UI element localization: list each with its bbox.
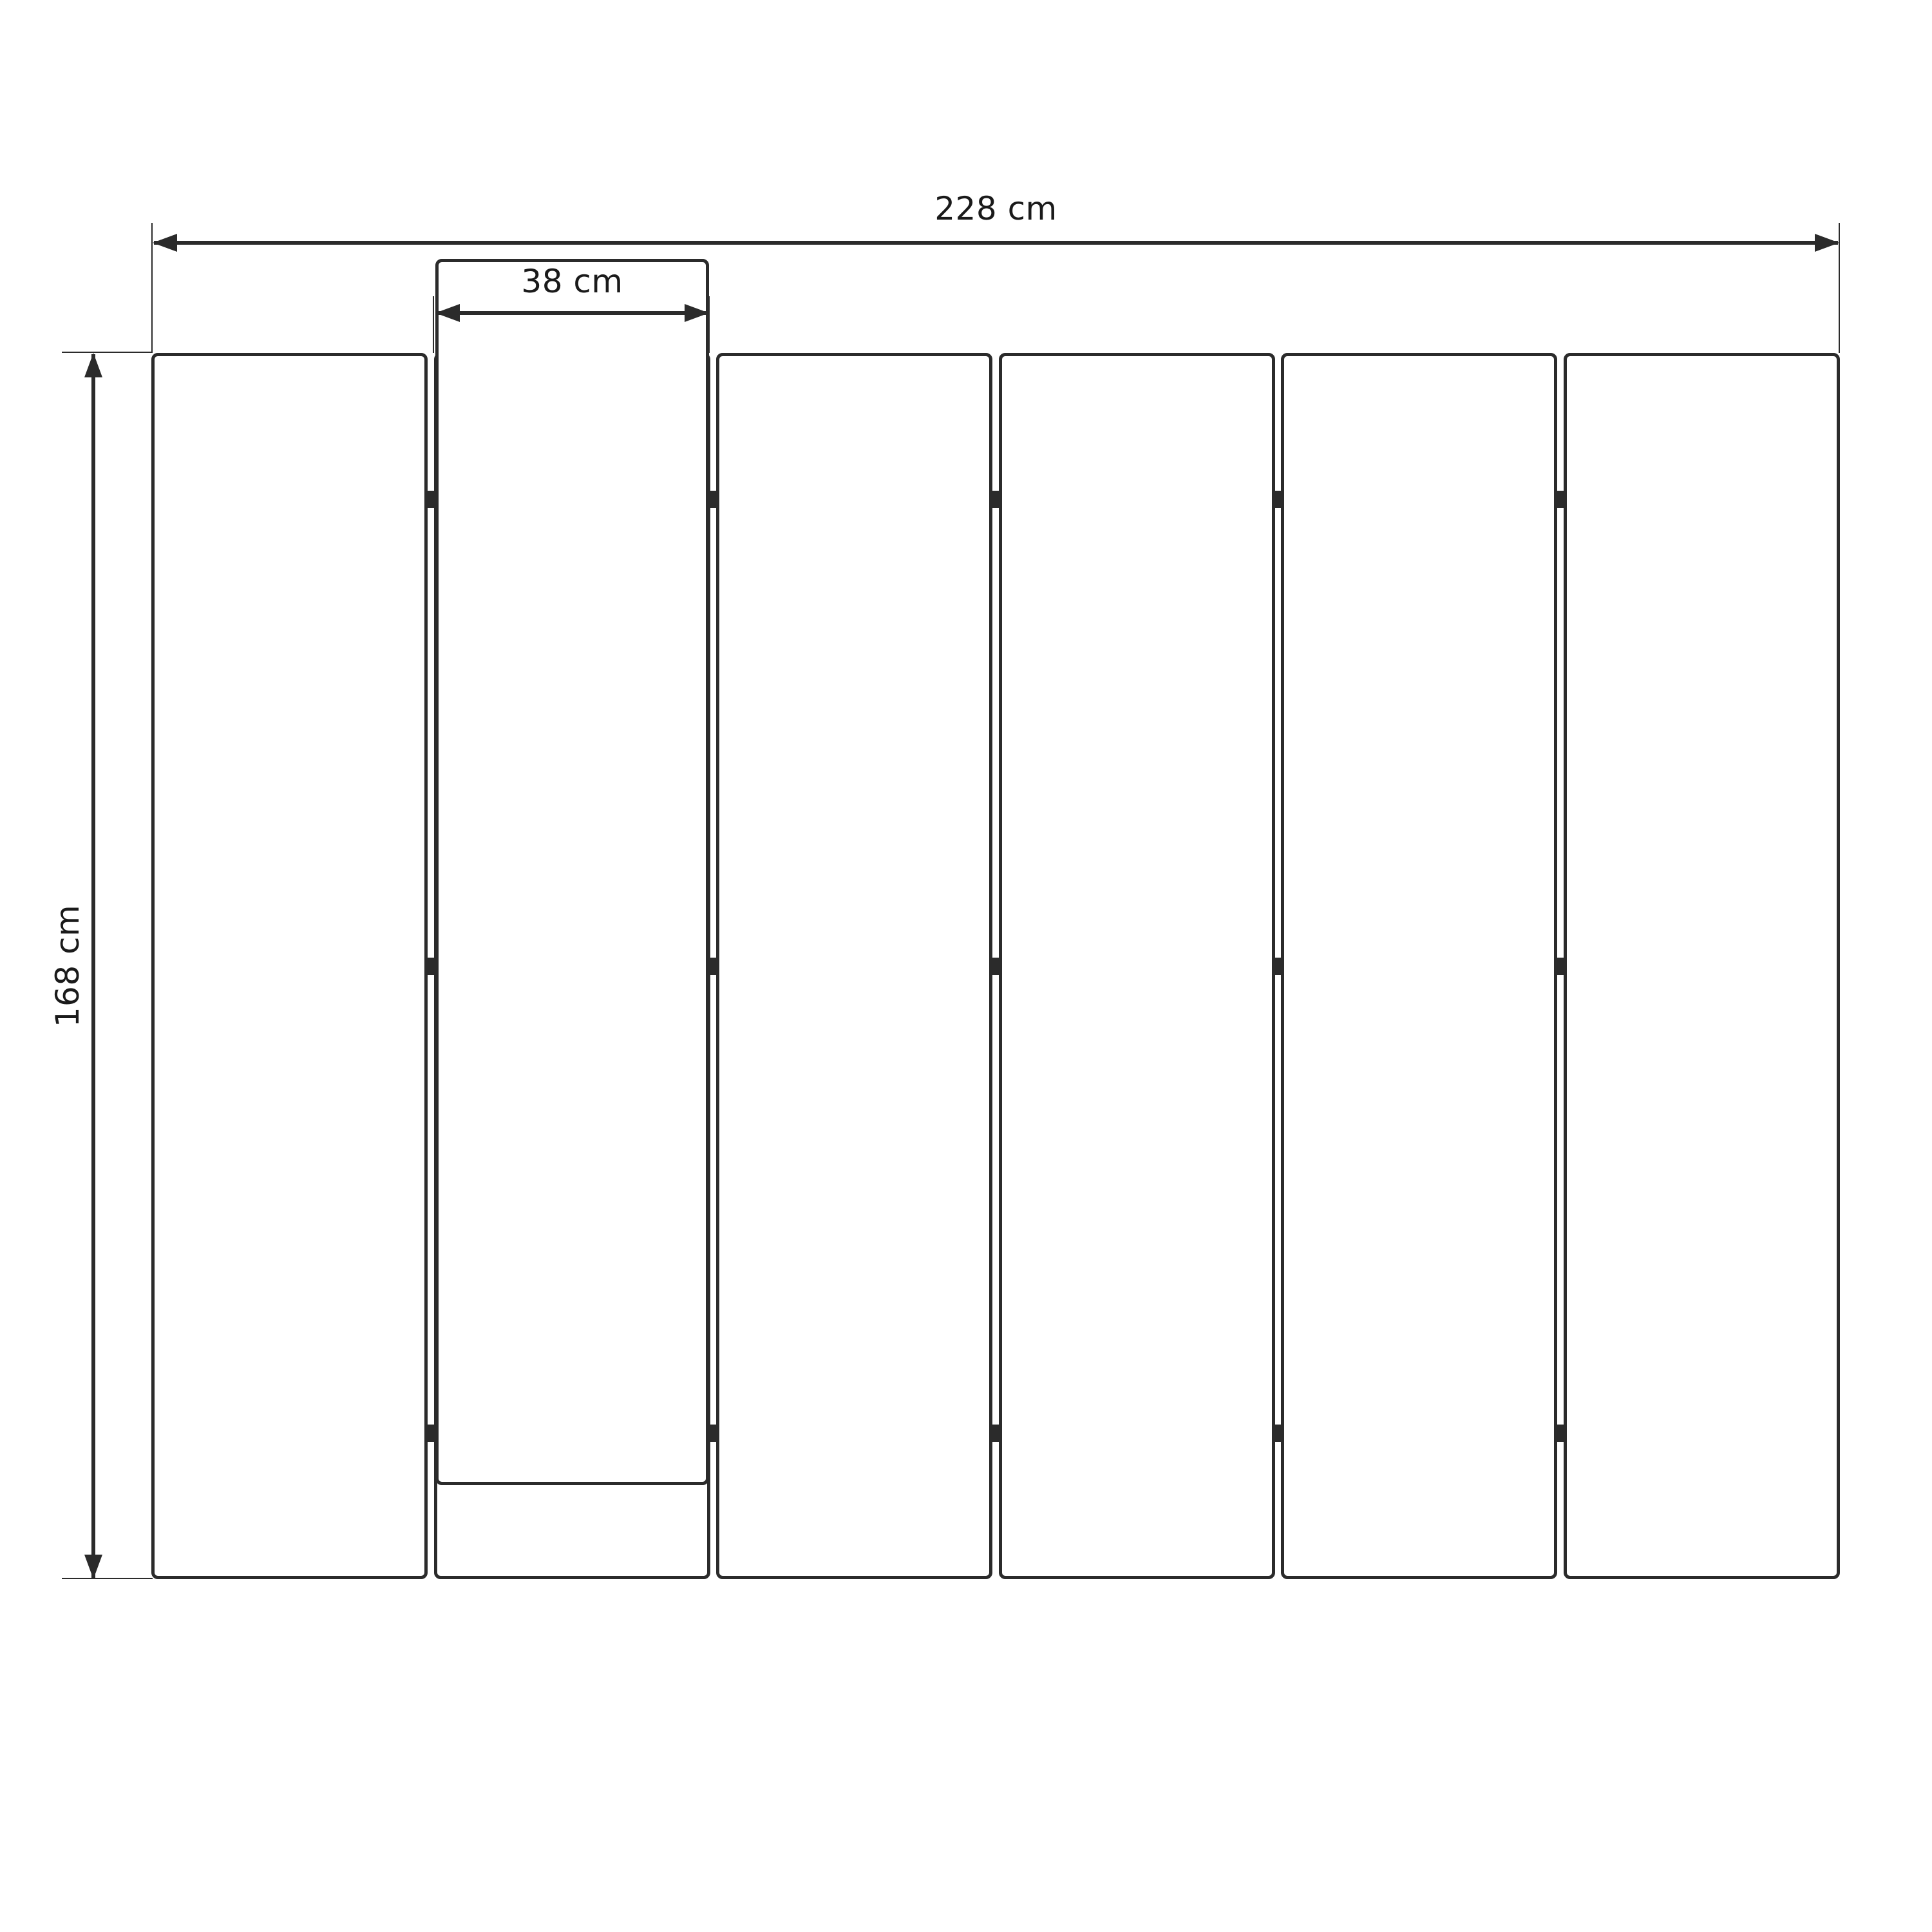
arrowhead-up-icon xyxy=(84,353,102,377)
hinge-mark xyxy=(1557,1425,1565,1442)
total-width-label: 228 cm xyxy=(153,189,1839,228)
panel-width-dimension-line xyxy=(437,311,708,315)
hinge-mark xyxy=(426,491,435,508)
hinge-mark xyxy=(1274,1425,1282,1442)
hinge-mark xyxy=(1557,491,1565,508)
hinge-mark xyxy=(992,491,1000,508)
panel-5 xyxy=(1281,353,1557,1579)
hinge-mark xyxy=(992,1425,1000,1442)
extension-line xyxy=(1839,223,1840,353)
arrowhead-down-icon xyxy=(84,1555,102,1579)
panel-4 xyxy=(999,353,1275,1579)
extension-line xyxy=(151,223,153,353)
hinge-mark xyxy=(426,958,435,975)
extension-line xyxy=(62,1578,153,1579)
arrowhead-left-icon xyxy=(153,234,177,252)
arrowhead-left-icon xyxy=(435,304,460,322)
panel-1 xyxy=(151,353,428,1579)
arrowhead-right-icon xyxy=(1815,234,1839,252)
arrowhead-right-icon xyxy=(685,304,709,322)
hinge-mark xyxy=(1274,491,1282,508)
hinge-mark xyxy=(1274,958,1282,975)
hinge-mark xyxy=(1557,958,1565,975)
extension-line xyxy=(433,296,434,353)
panel-6 xyxy=(1564,353,1840,1579)
hinge-mark xyxy=(709,958,717,975)
hinge-mark xyxy=(992,958,1000,975)
height-label: 168 cm xyxy=(48,837,87,1095)
hinge-mark xyxy=(709,491,717,508)
extension-line xyxy=(62,352,153,353)
dimension-diagram: 228 cm 38 cm 168 cm xyxy=(0,0,1932,1932)
hinge-mark xyxy=(426,1425,435,1442)
panel-width-label: 38 cm xyxy=(435,259,709,1485)
height-dimension-line xyxy=(91,354,95,1578)
hinge-mark xyxy=(709,1425,717,1442)
total-width-dimension-line xyxy=(154,241,1838,245)
extension-line xyxy=(708,296,710,353)
panel-3 xyxy=(716,353,992,1579)
